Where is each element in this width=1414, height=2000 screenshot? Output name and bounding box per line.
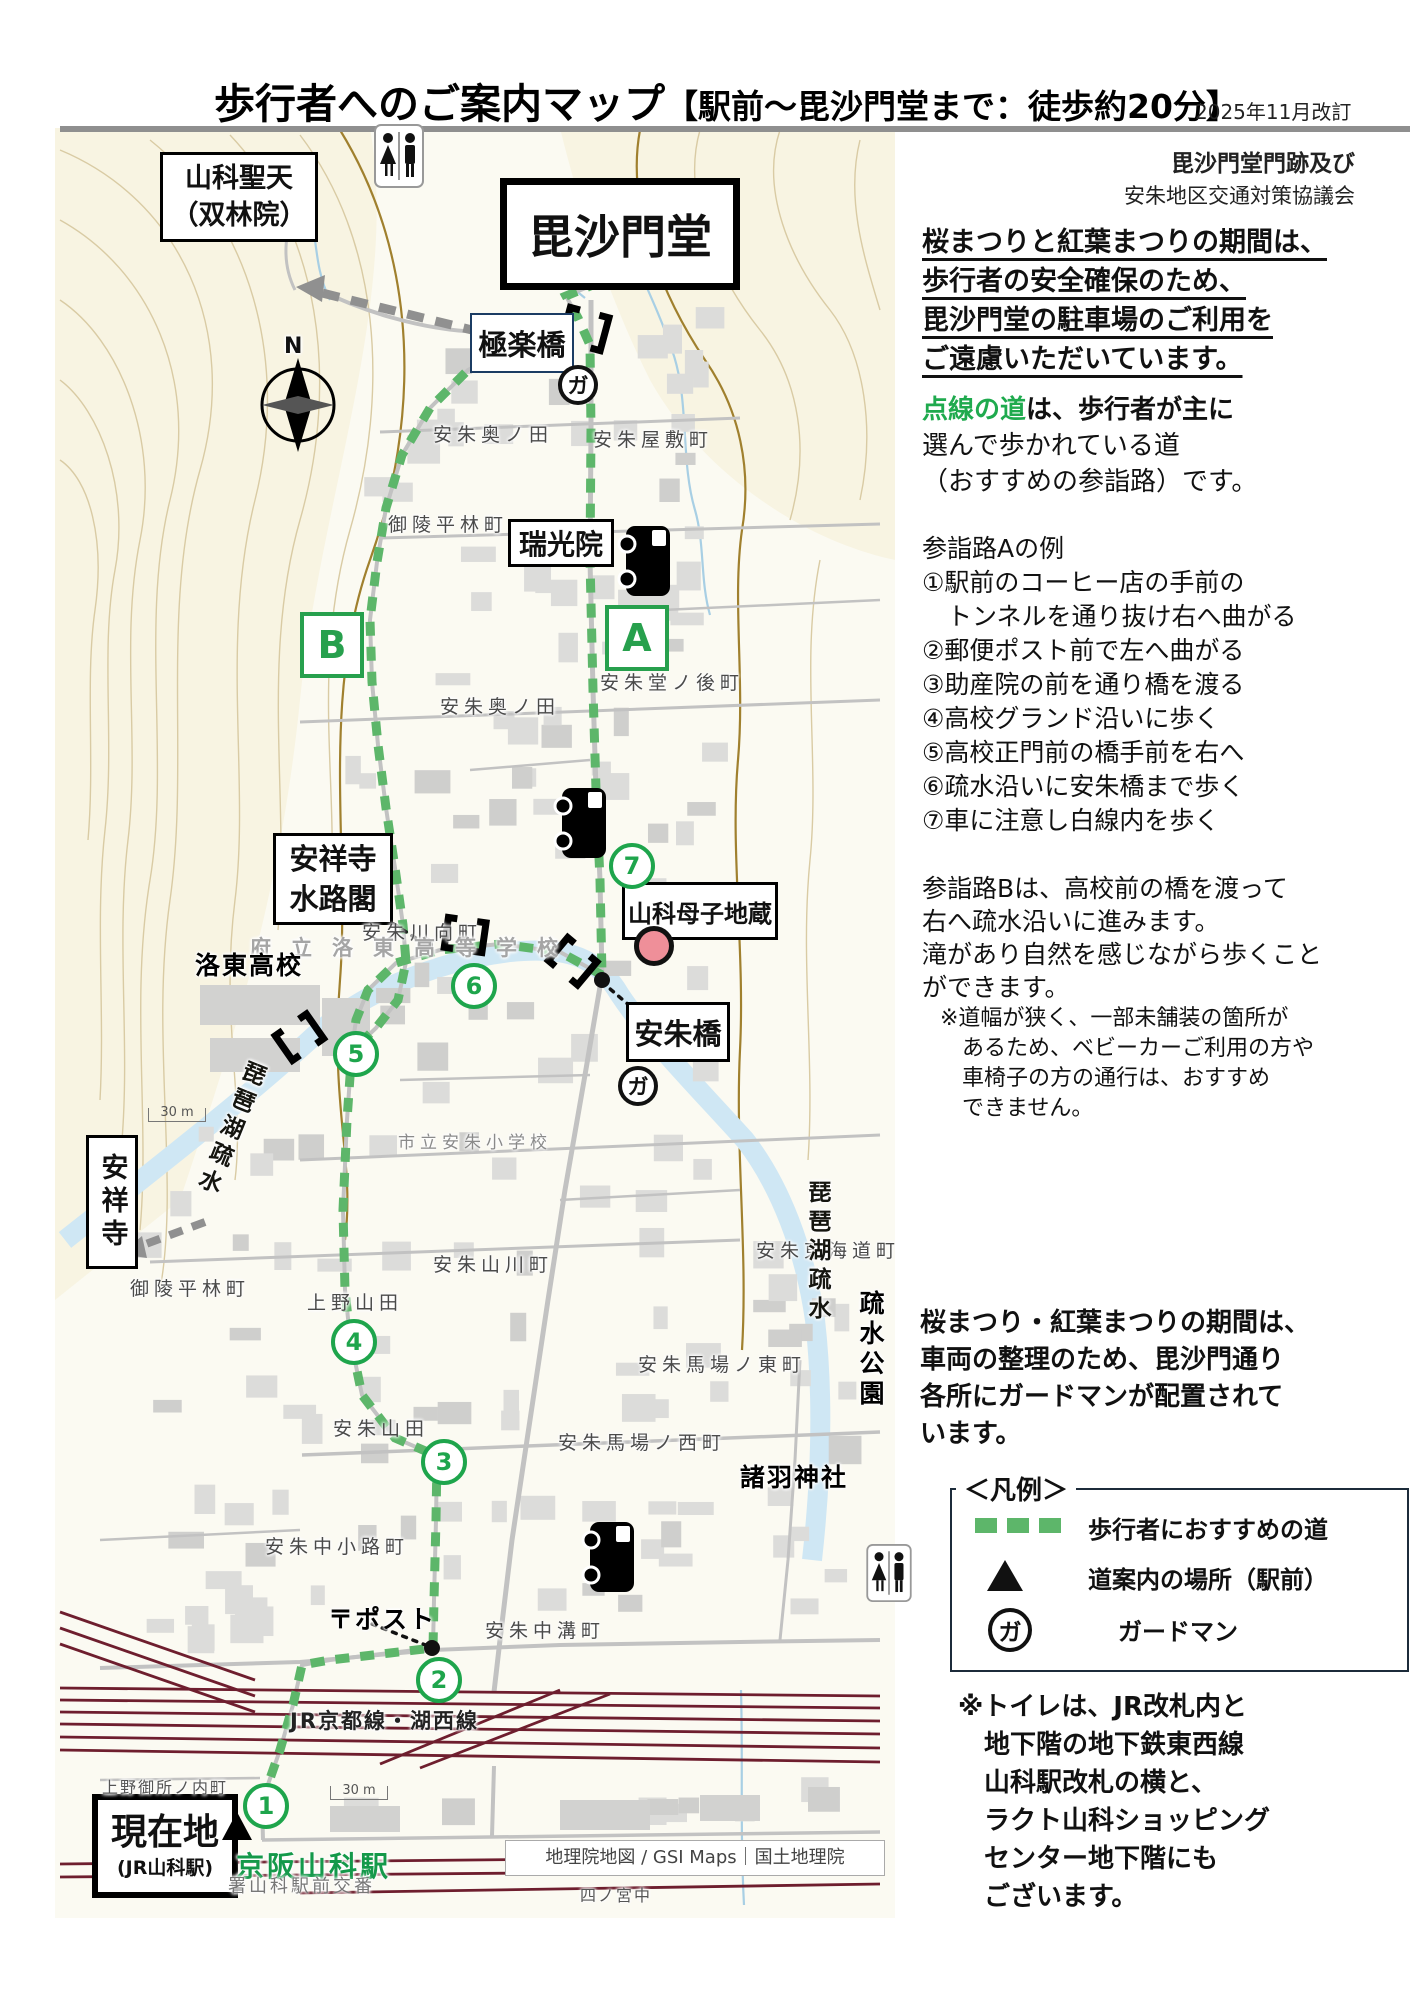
jizo-marker — [634, 926, 674, 966]
pedestrian-guide-map-page: 歩行者へのご案内マップ【駅前〜毘沙門堂まで：徒歩約20分】 2025年11月改訂… — [0, 0, 1414, 2000]
gokurakubashi-box: 極楽橋 — [470, 313, 574, 373]
guard-marker: ガ — [558, 365, 598, 405]
map-label: 安朱山田 — [333, 1414, 429, 1441]
dotted-road-lead: 点線の道 — [922, 395, 1026, 425]
title-sub: 【駅前〜毘沙門堂まで：徒歩約20分】 — [665, 87, 1239, 126]
anshubashi-box: 安朱橋 — [626, 1002, 730, 1062]
map-label: 安朱奥ノ田 — [440, 692, 560, 719]
legend-title: ＜凡例＞ — [956, 1470, 1076, 1507]
scale-bar: 30 m — [330, 1786, 388, 1800]
map-label: 市立安朱小学校 — [398, 1128, 552, 1153]
postbox-label: 〒ポスト — [328, 1600, 436, 1636]
map-label: 安朱屋敷町 — [593, 425, 713, 452]
map-canvas — [55, 128, 895, 1918]
route-marker-6: 6 — [451, 963, 497, 1009]
recommended-route-dash-icon — [1039, 1518, 1061, 1533]
org-line1: 毘沙門堂門跡及び — [925, 144, 1355, 178]
map-label: 安朱山川町 — [433, 1250, 553, 1277]
map-label: 安朱中小路町 — [265, 1532, 409, 1559]
narrow-road-note: ※道幅が狭く、一部未舗装の箇所が あるため、ベビーカーご利用の方や 車椅子の方の… — [940, 1004, 1314, 1124]
parking-notice: 桜まつりと紅葉まつりの期間は、歩行者の安全確保のため、毘沙門堂の駐車場のご利用を… — [922, 220, 1327, 376]
map-label: 諸羽神社 — [740, 1458, 848, 1494]
bus-icon — [616, 524, 672, 600]
scale-bar: 30 m — [148, 1108, 206, 1122]
parking-notice-line: 毘沙門堂の駐車場のご利用を — [922, 298, 1327, 337]
dotted-road-paragraph: 点線の道は、歩行者が主に 選んで歩かれている道 （おすすめの参詣路）です。 — [922, 392, 1257, 500]
guard-man-icon: ガ — [988, 1608, 1032, 1652]
header-divider — [60, 126, 1410, 132]
toilet-icon — [866, 1544, 912, 1602]
route-marker-7: 7 — [609, 843, 655, 889]
map-label: 署山科駅前交番 — [228, 1872, 375, 1898]
map-label: 疏水公園 — [852, 1290, 888, 1410]
anshoji-suirokaku-box: 安祥寺 水路閣 — [273, 833, 393, 925]
route-marker-2: 2 — [416, 1657, 462, 1703]
revision-date: 2025年11月改訂 — [1195, 96, 1351, 125]
bus-icon — [552, 786, 608, 862]
map-label: 安朱馬場ノ西町 — [558, 1428, 726, 1455]
map-label: 上野山田 — [307, 1288, 403, 1315]
map-label: 御陵平林町 — [130, 1274, 250, 1301]
org-line2: 安朱地区交通対策協議会 — [925, 180, 1355, 210]
parking-notice-line: 桜まつりと紅葉まつりの期間は、 — [922, 220, 1327, 259]
toilet-icon — [374, 124, 424, 188]
map-label: 安朱中溝町 — [485, 1616, 605, 1643]
route-b-paragraph: 参詣路Bは、高校前の橋を渡って 右へ疏水沿いに進みます。 滝があり自然を感じなが… — [922, 872, 1322, 1004]
route-marker-5: 5 — [333, 1031, 379, 1077]
legend-item-route: 歩行者におすすめの道 — [1088, 1510, 1328, 1545]
route-a-steps: 参詣路Aの例 ①駅前のコーヒー店の手前の トンネルを通り抜け右へ曲がる ②郵便ポ… — [922, 532, 1297, 838]
parking-notice-line: ご遠慮いただいています。 — [922, 337, 1327, 376]
map-label: 上野御所ノ内町 — [102, 1774, 228, 1798]
route-letter-A: A — [605, 605, 669, 671]
toilet-note: ※トイレは、JR改札内と 地下階の地下鉄東西線 山科駅改札の横と、 ラクト山科シ… — [958, 1688, 1270, 1916]
compass-n-label: N — [284, 334, 302, 359]
anshoji-box: 安祥寺 — [86, 1135, 138, 1269]
map-label: 安朱奥ノ田 — [433, 420, 553, 447]
recommended-route-dash-icon — [1007, 1518, 1029, 1533]
genzaichi-box: 現在地 (JR山科駅) — [92, 1794, 238, 1898]
map-label: 四ノ宮中 — [580, 1882, 652, 1906]
bus-icon — [580, 1520, 636, 1596]
recommended-route-dash-icon — [975, 1518, 997, 1533]
guide-location-triangle-icon — [987, 1560, 1023, 1591]
guard-placement-paragraph: 桜まつり・紅葉まつりの期間は、 車両の整理のため、毘沙門通り 各所にガードマンが… — [920, 1305, 1310, 1453]
parking-notice-line: 歩行者の安全確保のため、 — [922, 259, 1327, 298]
yamashina-shoten-box: 山科聖天 （双林院） — [160, 152, 318, 242]
map-credit: 地理院地図 / GSI Maps｜国土地理院 — [505, 1840, 885, 1876]
map-label: 安朱馬場ノ東町 — [638, 1350, 806, 1377]
map-label: 御陵平林町 — [388, 510, 508, 537]
zuikoin-box: 瑞光院 — [508, 519, 614, 567]
map-label: 安朱堂ノ後町 — [600, 668, 744, 695]
route-letter-B: B — [300, 612, 364, 678]
route-marker-4: 4 — [331, 1319, 377, 1365]
map-label: 洛東高校 — [195, 946, 303, 982]
page-title: 歩行者へのご案内マップ【駅前〜毘沙門堂まで：徒歩約20分】 — [214, 70, 1239, 130]
route-marker-3: 3 — [421, 1439, 467, 1485]
jr-line-label: JR京都線・湖西線 — [290, 1705, 479, 1735]
legend-item-guard: ガードマン — [1118, 1612, 1238, 1647]
guard-marker: ガ — [618, 1066, 658, 1106]
route-marker-1: 1 — [243, 1783, 289, 1829]
map-label: 琵琶湖疏水 — [800, 1180, 834, 1325]
title-main: 歩行者へのご案内マップ — [214, 80, 665, 128]
bishamondo-box: 毘沙門堂 — [500, 178, 740, 290]
legend-item-guide-location: 道案内の場所（駅前） — [1088, 1560, 1328, 1595]
